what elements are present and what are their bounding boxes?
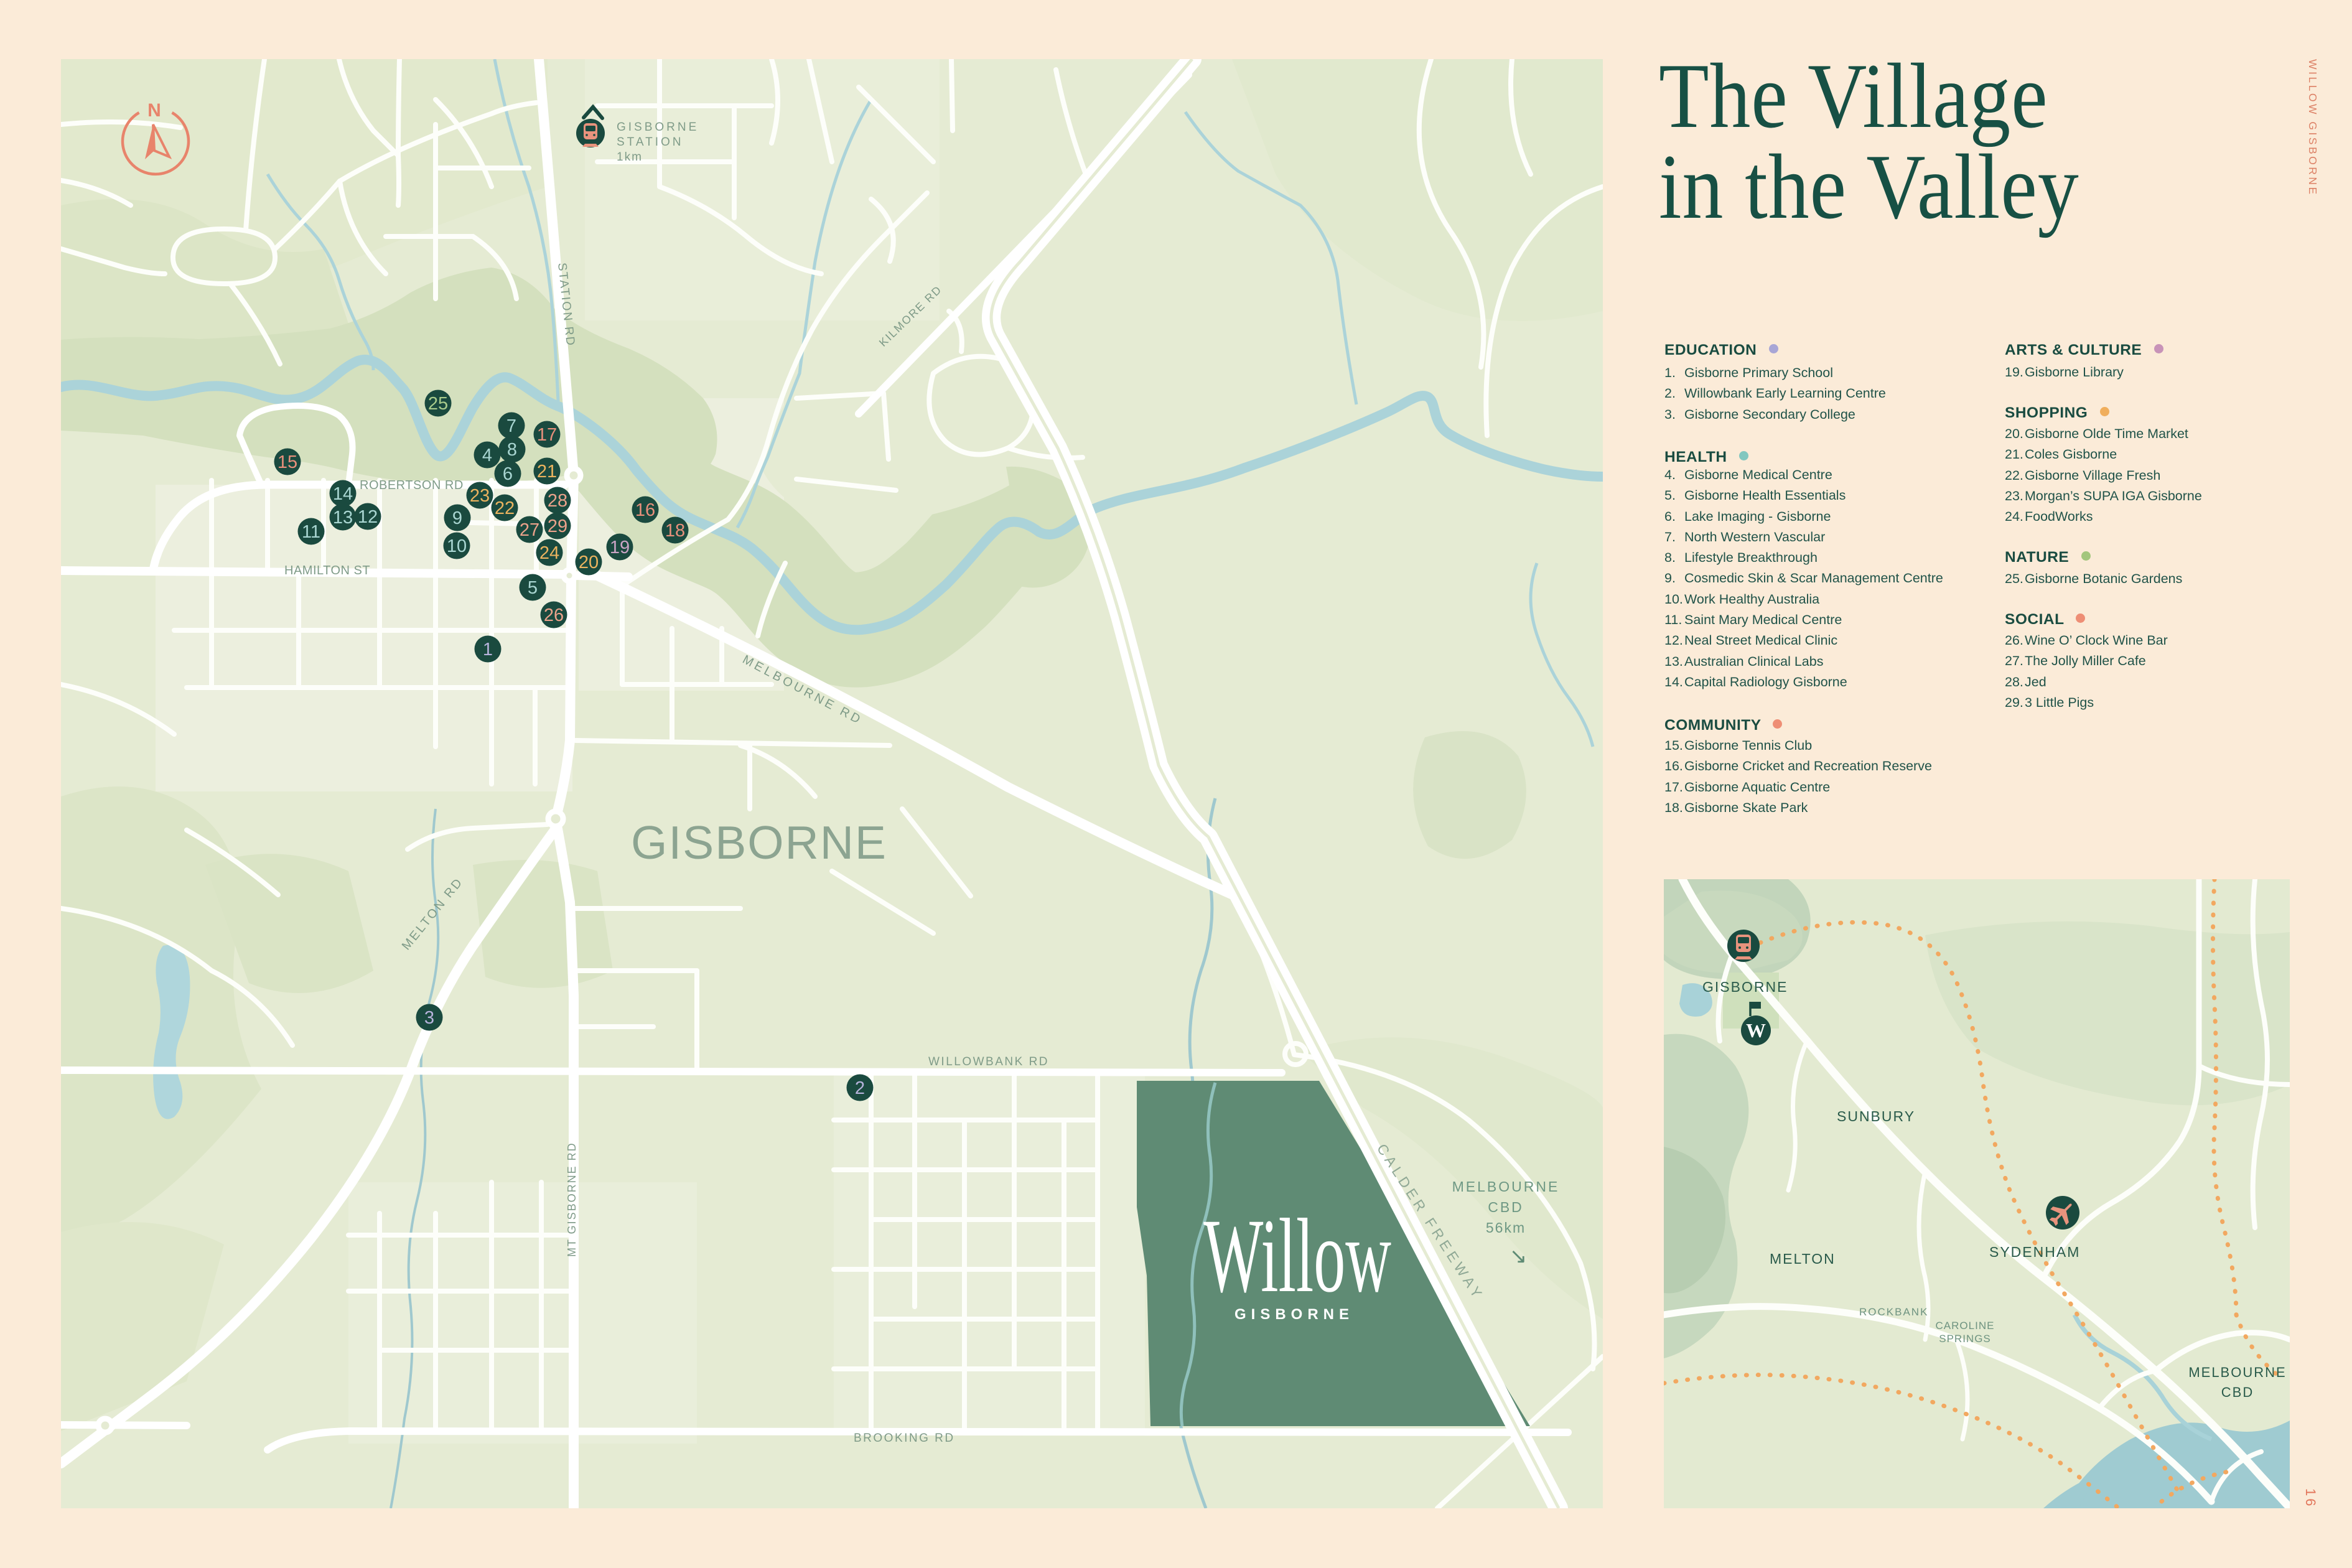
svg-text:16: 16	[635, 500, 655, 520]
svg-text:27: 27	[520, 520, 539, 540]
svg-text:1: 1	[483, 640, 493, 660]
svg-text:GISBORNE: GISBORNE	[617, 121, 699, 134]
svg-text:24: 24	[539, 543, 559, 563]
svg-text:19: 19	[610, 538, 630, 558]
svg-text:N: N	[147, 100, 161, 121]
svg-text:29: 29	[548, 516, 567, 536]
svg-text:26: 26	[544, 605, 564, 625]
svg-text:HAMILTON ST: HAMILTON ST	[284, 564, 370, 577]
svg-text:10: 10	[447, 536, 467, 556]
svg-text:11: 11	[302, 522, 320, 542]
svg-text:GISBORNE: GISBORNE	[1702, 979, 1788, 995]
svg-text:15: 15	[278, 452, 297, 472]
svg-text:12: 12	[358, 507, 378, 527]
svg-text:9: 9	[452, 508, 462, 528]
svg-text:13: 13	[333, 508, 353, 528]
svg-text:1km: 1km	[617, 151, 643, 164]
svg-text:CBD: CBD	[2221, 1384, 2254, 1400]
svg-text:22: 22	[495, 498, 515, 518]
svg-text:2: 2	[855, 1078, 865, 1098]
svg-text:ROBERTSON RD: ROBERTSON RD	[360, 478, 464, 492]
svg-text:20: 20	[579, 553, 599, 572]
svg-text:↘: ↘	[1510, 1244, 1528, 1268]
svg-text:8: 8	[507, 440, 517, 460]
svg-text:3: 3	[424, 1008, 434, 1028]
svg-text:18: 18	[665, 521, 685, 541]
svg-text:4: 4	[482, 446, 492, 465]
svg-text:28: 28	[548, 491, 567, 511]
svg-text:STATION: STATION	[617, 136, 684, 149]
svg-text:Willow: Willow	[1203, 1198, 1391, 1315]
svg-text:GISBORNE: GISBORNE	[631, 816, 887, 869]
svg-text:SUNBURY: SUNBURY	[1837, 1108, 1915, 1124]
svg-text:SPRINGS: SPRINGS	[1939, 1333, 1991, 1345]
svg-text:SYDENHAM: SYDENHAM	[1989, 1244, 2080, 1260]
svg-text:21: 21	[537, 462, 557, 482]
svg-text:17: 17	[537, 425, 557, 445]
svg-text:W: W	[1746, 1019, 1766, 1042]
svg-text:5: 5	[528, 578, 538, 598]
svg-text:56km: 56km	[1486, 1220, 1526, 1236]
svg-text:GISBORNE: GISBORNE	[1234, 1306, 1354, 1323]
svg-text:CAROLINE: CAROLINE	[1936, 1320, 1995, 1332]
svg-text:MELBOURNE: MELBOURNE	[1452, 1178, 1560, 1195]
svg-text:MT GISBORNE RD: MT GISBORNE RD	[566, 1142, 578, 1257]
svg-text:MELBOURNE: MELBOURNE	[2188, 1365, 2286, 1380]
svg-text:CBD: CBD	[1488, 1199, 1524, 1215]
svg-text:MELTON: MELTON	[1770, 1251, 1836, 1267]
svg-text:6: 6	[503, 464, 513, 484]
svg-text:23: 23	[470, 486, 490, 506]
svg-text:7: 7	[506, 416, 516, 436]
svg-text:14: 14	[333, 484, 353, 504]
svg-text:BROOKING RD: BROOKING RD	[854, 1432, 955, 1445]
svg-text:WILLOWBANK RD: WILLOWBANK RD	[928, 1055, 1049, 1068]
svg-text:25: 25	[428, 394, 448, 414]
svg-text:ROCKBANK: ROCKBANK	[1859, 1306, 1928, 1318]
